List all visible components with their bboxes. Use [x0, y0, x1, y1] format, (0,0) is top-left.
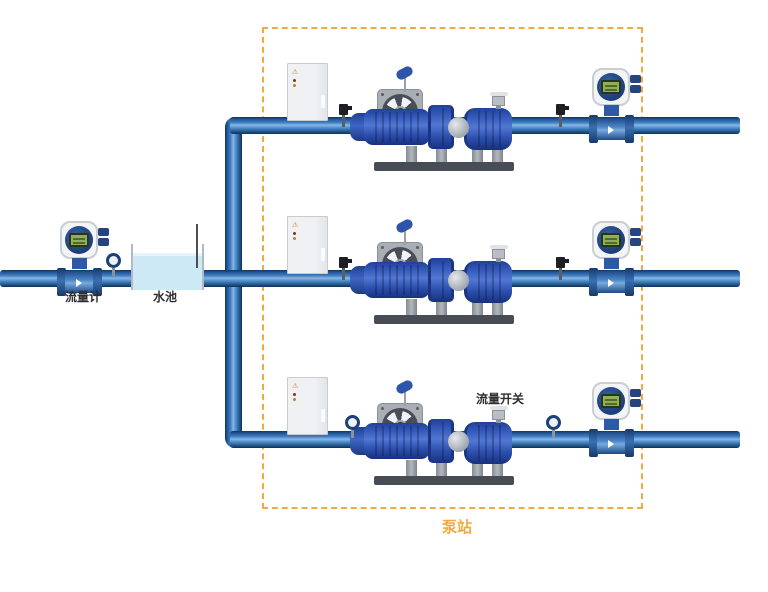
gauge-stem	[351, 430, 354, 438]
indicator-light	[293, 398, 296, 401]
base-leg	[406, 460, 417, 477]
coupling	[448, 431, 469, 452]
warning-icon: ⚠	[292, 383, 298, 390]
pump-station-diagram: 流量计 水池 泵站 ⚠	[0, 0, 768, 592]
gauge-dial	[345, 415, 360, 430]
gauge-stem	[552, 430, 555, 438]
flow-arrow-icon	[76, 279, 82, 287]
flow-meter-label: 流量计	[57, 288, 109, 305]
flowmeter-neck	[604, 419, 619, 430]
flow-switch-sensor-icon	[490, 406, 508, 423]
inlet-flowmeter-icon	[57, 221, 109, 296]
gauge-dial	[546, 415, 561, 430]
gauge-stem	[112, 268, 115, 276]
motor	[364, 423, 430, 459]
flowmeter-display	[69, 233, 89, 247]
level-sensor-antenna-icon	[196, 224, 198, 268]
flow-switch-label: 流量开关	[462, 390, 538, 407]
flowmeter-neck	[72, 258, 87, 269]
flow-arrow-icon	[608, 440, 614, 448]
indicator-light	[293, 393, 296, 396]
flowmeter-display	[601, 394, 621, 408]
flowmeter-connector	[98, 238, 109, 246]
flowmeter-connector	[98, 228, 109, 236]
flowmeter-tube	[597, 432, 626, 454]
control-cabinet-icon: ⚠	[287, 377, 328, 435]
pump-unit-3: ⚠ 流量开关	[0, 0, 768, 592]
sensor-neck	[496, 420, 501, 423]
cabinet-label-strip	[321, 409, 325, 422]
flowmeter-flange	[625, 429, 634, 457]
flowmeter-connector	[630, 389, 641, 397]
pressure-gauge-icon	[345, 415, 361, 439]
screw	[381, 407, 384, 410]
water-pool-label: 水池	[139, 288, 191, 305]
sensor-body	[492, 410, 505, 420]
temperature-sensor-icon	[394, 382, 416, 408]
pump	[464, 422, 512, 464]
flowmeter-connector	[630, 399, 641, 407]
pressure-gauge-icon	[546, 415, 562, 439]
outlet-flowmeter-icon	[589, 382, 641, 457]
mounting-base	[374, 476, 514, 485]
pump-station-label: 泵站	[407, 516, 507, 537]
screw	[416, 407, 419, 410]
